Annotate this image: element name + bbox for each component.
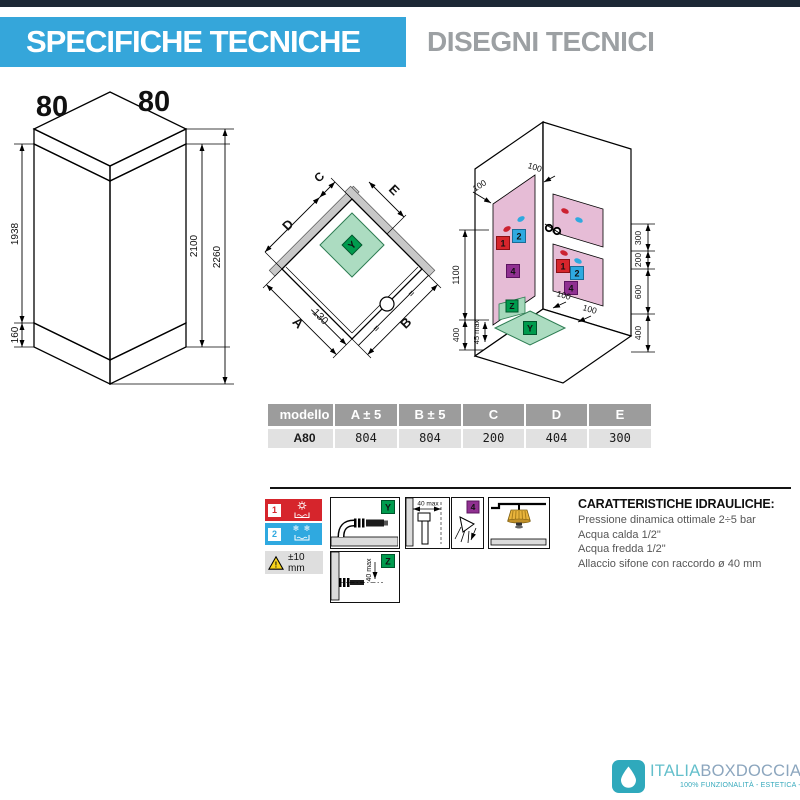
corner-installation-drawing: 1 2 4 1 2 4 [433, 112, 673, 390]
table-header-row: modello A ± 5 B ± 5 C D E [268, 404, 651, 426]
hydraulics-siphon: Allaccio sifone con raccordo ø 40 mm [578, 557, 796, 572]
header-d: D [526, 404, 587, 426]
width-label-left: 80 [36, 91, 68, 123]
dim-45max: 45 max [472, 319, 481, 344]
badge-hot-right: 1 [557, 260, 570, 273]
svg-text:!: ! [275, 560, 278, 569]
svg-text:4: 4 [510, 267, 515, 277]
badge-hot-left: 1 [497, 237, 510, 250]
snowflakes-icon: ❄ ❄ [293, 525, 312, 533]
hot-water-badge: 1 [268, 504, 281, 517]
top-bar [0, 0, 800, 7]
svg-text:Y: Y [527, 324, 533, 334]
tolerance-value: ±10 mm [288, 552, 320, 574]
hydraulics-hot-water: Acqua calda 1/2" [578, 528, 796, 543]
basin-icon [285, 533, 319, 543]
brand-tagline: 100% FUNZIONALITÀ - ESTETICA - PRATICITÀ [680, 782, 800, 790]
dim-130-label: 130 [310, 306, 331, 327]
header-a: A ± 5 [335, 404, 397, 426]
cabin-rim-left [34, 129, 110, 181]
iso-dimension-lines [14, 129, 234, 384]
svg-text:Y: Y [385, 503, 391, 513]
cell-a: 804 [335, 429, 397, 448]
glass-panel-right [110, 144, 186, 360]
tolerance-legend: ! ±10 mm [265, 551, 323, 574]
dim-300-right: 300 [633, 231, 643, 245]
badge-y-legend: Y [382, 501, 395, 514]
header-c: C [463, 404, 524, 426]
brand-name-boxdoccia: BOXDOCCIA [700, 762, 800, 780]
spec-sheet-page: SPECIFICHE TECNICHE DISEGNI TECNICI 80 8… [0, 0, 800, 800]
dim-e-label: E [386, 181, 403, 198]
svg-text:Z: Z [509, 301, 514, 311]
glass-panel-left [34, 144, 110, 360]
water-drop-icon [612, 760, 645, 793]
cell-e: 300 [589, 429, 651, 448]
drain-circle [380, 297, 394, 311]
showerhead-spray-drawing: 4 [452, 498, 482, 547]
dim-400-left: 400 [451, 328, 461, 342]
sun-and-basin-icon [285, 501, 319, 520]
dimensions-table: modello A ± 5 B ± 5 C D E A80 804 804 20… [268, 404, 651, 448]
isometric-cabin-drawing: 80 80 1938 160 2100 2260 [6, 84, 238, 398]
badge-z-legend: Z [382, 555, 395, 568]
svg-text:Z: Z [385, 557, 391, 567]
ceiling-shower-detail-box [488, 497, 550, 549]
hydraulics-cold-water: Acqua fredda 1/2" [578, 542, 796, 557]
cell-b: 804 [399, 429, 461, 448]
ceiling-showerhead-drawing [489, 498, 548, 547]
warning-triangle-icon: ! [268, 555, 284, 571]
siphon-elbow-drawing: Y [331, 498, 398, 547]
tray-right [110, 323, 186, 384]
cell-d: 404 [526, 429, 587, 448]
header-b: B ± 5 [399, 404, 461, 426]
dim-b-label: B [397, 314, 414, 331]
svg-text:1: 1 [500, 239, 505, 249]
page-subtitle: DISEGNI TECNICI [427, 17, 654, 67]
glass-height-label: 1938 [10, 222, 21, 245]
badge-y: Y [524, 322, 537, 335]
header-modello: modello [268, 404, 333, 426]
section-divider [270, 487, 791, 489]
page-title: SPECIFICHE TECNICHE [0, 24, 360, 60]
dim-40max-z: 40 max [366, 558, 373, 581]
dim-c-label: C [311, 169, 327, 185]
dim-400-right: 400 [633, 326, 643, 340]
brand-name: ITALIABOXDOCCIA [650, 760, 800, 782]
door-height-label: 2100 [189, 234, 200, 257]
siphon-detail-box: Y [330, 497, 400, 549]
width-label-right: 80 [138, 86, 170, 118]
equal-mark-right: = [406, 288, 418, 300]
badge-head-legend: 4 [467, 501, 479, 513]
wall-pipe-detail-box: 40 max [405, 497, 450, 549]
table-row: A80 804 804 200 404 300 [268, 429, 651, 448]
showerhead-detail-box: 4 [451, 497, 484, 549]
equal-mark-left: = [371, 323, 383, 335]
dim-600-right: 600 [633, 285, 643, 299]
base-height-label: 160 [10, 326, 21, 343]
svg-text:1: 1 [560, 262, 565, 272]
page-title-banner: SPECIFICHE TECNICHE [0, 17, 406, 67]
badge-z: Z [506, 300, 518, 312]
brand-name-italia: ITALIA [650, 762, 700, 780]
header-e: E [589, 404, 651, 426]
dim-200-right: 200 [633, 253, 643, 267]
hot-water-legend: 1 [265, 499, 322, 521]
badge-head-left: 4 [507, 265, 520, 278]
pipe-height-drawing: 40 max Z [331, 552, 398, 601]
badge-cold-right: 2 [571, 267, 584, 280]
cell-model: A80 [268, 429, 333, 448]
svg-text:4: 4 [471, 502, 476, 512]
svg-text:2: 2 [516, 232, 521, 242]
hydraulics-pressure: Pressione dinamica ottimale 2÷5 bar [578, 513, 796, 528]
dim-40max-wall: 40 max [417, 501, 439, 508]
cold-water-legend: 2 ❄ ❄ [265, 523, 322, 545]
brand-logo: ITALIABOXDOCCIA 100% FUNZIONALITÀ - ESTE… [612, 760, 794, 793]
pipe-height-detail-box: 40 max Z [330, 551, 400, 603]
wall-pipe-drawing: 40 max [406, 498, 448, 547]
cell-c: 200 [463, 429, 524, 448]
cabin-rim-right [110, 129, 186, 181]
svg-text:2: 2 [574, 269, 579, 279]
dim-1100: 1100 [451, 265, 461, 284]
cold-water-badge: 2 [268, 528, 281, 541]
dim-a-label: A [290, 314, 308, 332]
hydraulics-title: CARATTERISTICHE IDRAULICHE: [578, 497, 796, 511]
hydraulic-characteristics: CARATTERISTICHE IDRAULICHE: Pressione di… [578, 497, 796, 571]
dim-d-label: D [279, 216, 296, 233]
tray-left [34, 323, 110, 384]
total-height-label: 2260 [212, 245, 223, 268]
badge-cold-left: 2 [513, 230, 526, 243]
